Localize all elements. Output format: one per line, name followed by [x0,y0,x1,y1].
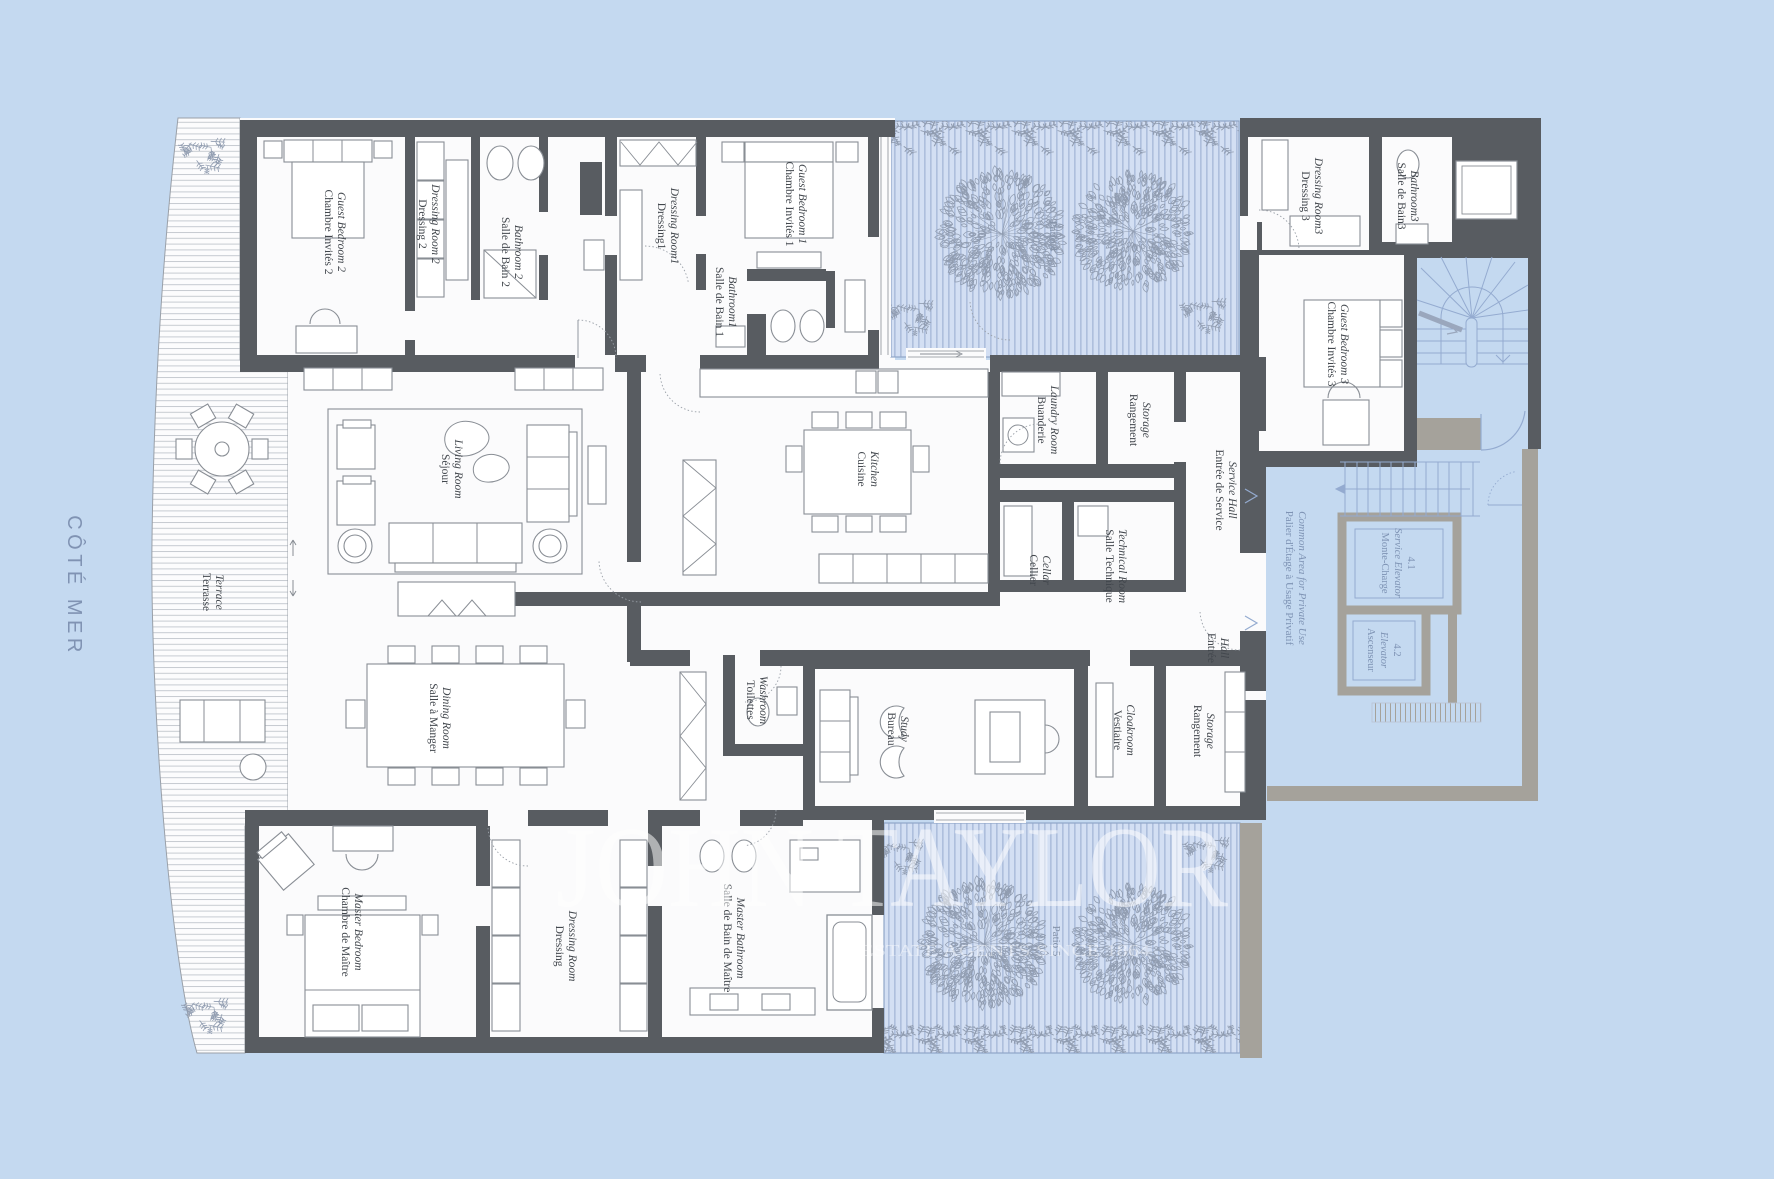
svg-text:Dressing Room1: Dressing Room1 [668,187,680,265]
svg-text:Toilettes: Toilettes [744,680,756,720]
svg-text:Salle à Manger: Salle à Manger [427,683,439,753]
svg-text:Dressing1: Dressing1 [655,203,667,250]
svg-text:Study: Study [898,716,910,742]
svg-text:CÔTÉ MER: CÔTÉ MER [63,515,86,657]
svg-text:Service Elevator: Service Elevator [1392,528,1403,599]
svg-text:Cuisine: Cuisine [855,451,867,486]
svg-text:Guest Bedroom 3: Guest Bedroom 3 [1338,304,1350,384]
svg-text:Terrace: Terrace [213,574,225,609]
svg-text:Master Bedroom: Master Bedroom [352,892,364,970]
svg-text:Living Room: Living Room [452,438,464,498]
svg-text:Dressing: Dressing [553,926,565,967]
svg-text:Guest Bedroom 1: Guest Bedroom 1 [796,164,808,244]
svg-text:Cloakroom: Cloakroom [1124,704,1136,755]
svg-text:JOHN TAYLOR: JOHN TAYLOR [556,802,1228,931]
svg-text:Ascenseur: Ascenseur [1365,628,1376,672]
svg-text:Dressing 3: Dressing 3 [1299,171,1311,221]
svg-text:Cellar: Cellar [1040,555,1052,585]
svg-text:Kitchen: Kitchen [868,450,880,487]
svg-text:Palier d'Étage à Usage Privati: Palier d'Étage à Usage Privatif [1283,511,1295,646]
svg-text:4.1: 4.1 [1405,556,1416,569]
svg-text:ESTATE AGENTS SINCE 1864: ESTATE AGENTS SINCE 1864 [860,941,1151,960]
svg-text:Séjour: Séjour [439,454,451,484]
svg-text:Laundry Room: Laundry Room [1048,385,1060,455]
svg-text:Buanderie: Buanderie [1035,396,1047,443]
svg-text:Storage: Storage [1140,402,1152,438]
svg-text:Bureau: Bureau [885,712,897,745]
svg-text:Guest Bedroom 2: Guest Bedroom 2 [335,192,347,272]
svg-text:Rangement: Rangement [1191,705,1203,758]
svg-text:Chambre Invités 3: Chambre Invités 3 [1325,302,1337,387]
svg-text:Chambre Invités 1: Chambre Invités 1 [783,162,795,247]
svg-text:Cellier: Cellier [1027,554,1039,585]
svg-text:Salle de Bain3: Salle de Bain3 [1395,162,1407,229]
svg-text:Dressing 2: Dressing 2 [416,199,428,249]
svg-text:Dressing Room3: Dressing Room3 [1312,157,1324,235]
svg-text:Dining Room: Dining Room [440,686,452,749]
svg-text:Entrée de Service: Entrée de Service [1213,449,1225,530]
svg-text:Terrasse: Terrasse [200,573,212,611]
svg-text:Service Hall: Service Hall [1226,461,1238,518]
svg-text:Salle de Bain 1: Salle de Bain 1 [713,267,725,337]
svg-text:Washroom: Washroom [757,676,769,724]
svg-text:Common Area for Private Use: Common Area for Private Use [1296,511,1308,645]
svg-text:Elevator: Elevator [1378,631,1389,669]
svg-text:Bathroom 2: Bathroom 2 [512,225,524,279]
svg-text:Chambre de Maître: Chambre de Maître [339,887,351,976]
svg-text:Hall: Hall [1218,637,1230,658]
svg-text:Entrée: Entrée [1205,633,1217,663]
svg-text:Salle de Bain 2: Salle de Bain 2 [499,217,511,287]
svg-text:Bathroom1: Bathroom1 [726,276,738,327]
svg-text:Monte-Charge: Monte-Charge [1379,532,1390,593]
svg-text:Salle Technique: Salle Technique [1103,529,1115,602]
svg-text:Dressing Room 2: Dressing Room 2 [429,183,441,264]
svg-text:4.2: 4.2 [1391,643,1402,656]
svg-text:Bathroom3: Bathroom3 [1408,170,1420,222]
svg-text:Rangement: Rangement [1127,394,1139,447]
svg-text:Storage: Storage [1204,713,1216,749]
svg-text:Vestiaire: Vestiaire [1111,710,1123,750]
svg-text:Chambre Invités 2: Chambre Invités 2 [322,190,334,275]
svg-text:Patio 4: Patio 4 [1047,221,1059,252]
svg-text:Technical Room: Technical Room [1116,529,1128,603]
